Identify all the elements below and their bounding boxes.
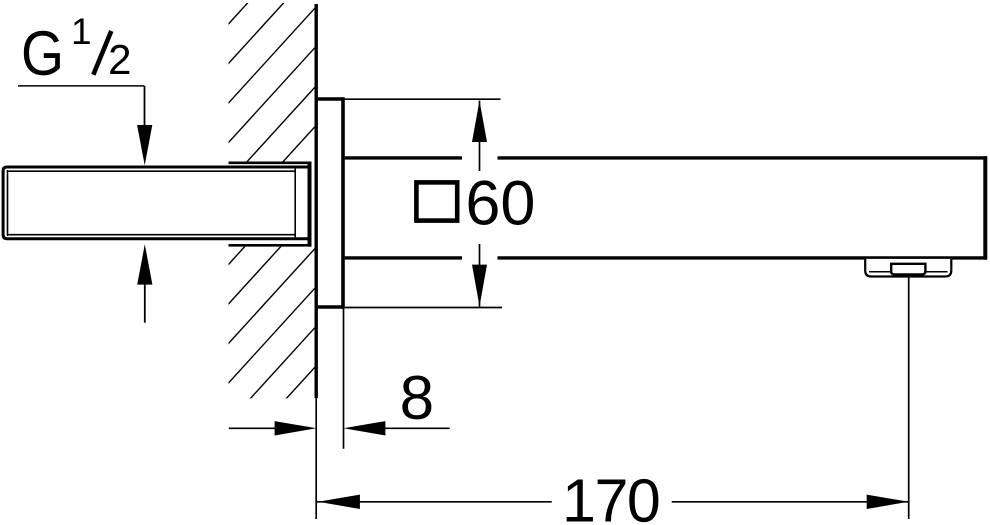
svg-text:1: 1 — [71, 11, 92, 52]
svg-text:8: 8 — [400, 364, 435, 433]
svg-text:G: G — [21, 19, 64, 89]
svg-text:60: 60 — [465, 168, 535, 238]
svg-text:2: 2 — [108, 36, 131, 83]
svg-text:170: 170 — [562, 466, 659, 525]
